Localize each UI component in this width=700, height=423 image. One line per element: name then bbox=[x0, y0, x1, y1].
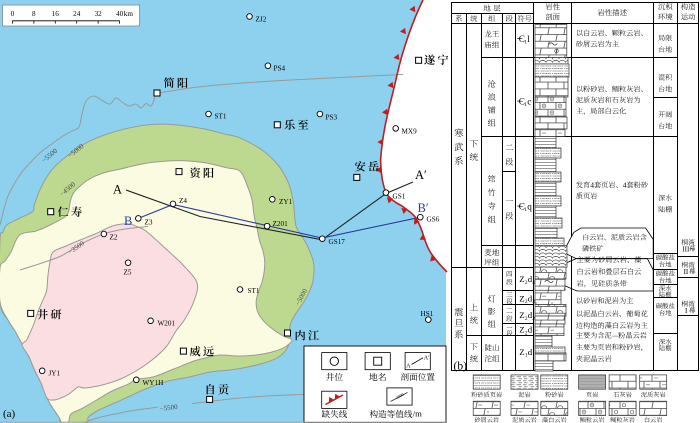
svg-text:III: III bbox=[682, 245, 690, 253]
svg-text:40: 40 bbox=[116, 10, 124, 18]
svg-text:ZJ2: ZJ2 bbox=[256, 16, 267, 24]
svg-text:l: l bbox=[527, 34, 530, 44]
svg-text:A: A bbox=[113, 183, 122, 197]
svg-text:GS6: GS6 bbox=[427, 216, 440, 224]
svg-text:JY1: JY1 bbox=[49, 370, 61, 378]
svg-text:A′: A′ bbox=[415, 168, 427, 182]
svg-text:c: c bbox=[527, 97, 531, 107]
svg-text:24: 24 bbox=[73, 10, 81, 18]
svg-text:MX9: MX9 bbox=[402, 128, 418, 136]
svg-text:32: 32 bbox=[95, 10, 103, 18]
svg-text:ST1: ST1 bbox=[248, 287, 260, 295]
svg-text:Z: Z bbox=[519, 293, 524, 303]
svg-text:q: q bbox=[527, 202, 532, 212]
svg-text:A′: A′ bbox=[424, 356, 430, 362]
svg-text:HS1: HS1 bbox=[421, 310, 434, 318]
svg-text:A: A bbox=[406, 364, 411, 370]
svg-text:Z: Z bbox=[519, 325, 524, 335]
svg-text:ST1: ST1 bbox=[215, 113, 227, 121]
svg-text:B: B bbox=[124, 214, 132, 228]
svg-text:Z5: Z5 bbox=[124, 269, 132, 277]
svg-text:PS3: PS3 bbox=[326, 114, 338, 122]
svg-text:Z: Z bbox=[519, 274, 524, 284]
svg-text:II: II bbox=[684, 268, 689, 276]
svg-text:(b): (b) bbox=[454, 361, 468, 373]
svg-text:Z2: Z2 bbox=[110, 234, 118, 242]
svg-text:Z201: Z201 bbox=[273, 220, 289, 228]
svg-text:ZY1: ZY1 bbox=[279, 198, 293, 206]
svg-text:(a): (a) bbox=[3, 408, 16, 420]
svg-text:4: 4 bbox=[590, 180, 594, 189]
svg-text:0: 0 bbox=[11, 10, 15, 18]
svg-text:W201: W201 bbox=[158, 320, 176, 328]
svg-text:Z: Z bbox=[519, 347, 524, 357]
svg-text:Z4: Z4 bbox=[179, 197, 187, 205]
svg-text:GS17: GS17 bbox=[329, 238, 346, 246]
svg-text:/m: /m bbox=[413, 409, 422, 419]
svg-text:16: 16 bbox=[52, 10, 60, 18]
svg-text:B′: B′ bbox=[418, 201, 429, 215]
svg-text:4: 4 bbox=[623, 180, 627, 189]
svg-text:GS1: GS1 bbox=[393, 193, 406, 201]
svg-text:WY1H: WY1H bbox=[143, 379, 164, 387]
svg-text:Z3: Z3 bbox=[145, 219, 153, 227]
svg-text:Z: Z bbox=[519, 310, 524, 320]
svg-text:8: 8 bbox=[32, 10, 36, 18]
svg-text:km: km bbox=[124, 10, 134, 18]
svg-text:d: d bbox=[528, 347, 533, 357]
svg-text:PS4: PS4 bbox=[274, 65, 286, 73]
